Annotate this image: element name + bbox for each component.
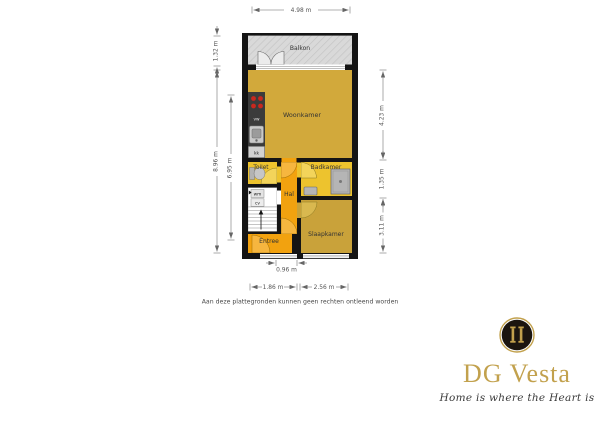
balcony-threshold [248,65,352,71]
dim-right-slaapkamer-label: 3.11 m [380,215,386,236]
shower-icon [331,169,350,194]
fridge-label: kk [254,151,259,157]
floorplan-page: vw kk wm cv [0,0,600,424]
dim-right-woonkamer-label: 4.23 m [380,105,386,126]
kitchen-counter: vw kk [248,92,265,158]
dim-right-badkamer-label: 1.35 m [380,168,386,189]
dim-left-total-label: 8.96 m [214,151,220,172]
label-badkamer: Badkamer [311,164,342,171]
dgvesta-logo: DG Vesta Home is where the Heart is [437,316,597,404]
label-slaapkamer: Slaapkamer [308,231,344,238]
disclaimer-text: Aan deze plattegronden kunnen geen recht… [202,299,399,306]
dim-bottom-door-label: 0.96 m [276,268,297,274]
label-hal: Hal [284,191,294,198]
dim-bottom-left-label: 1.86 m [263,285,284,291]
dgvesta-emblem-icon [498,316,536,354]
dishwasher-label: vw [253,118,260,123]
bathroom-sink-icon [304,187,317,195]
kitchen-sink-icon [250,126,264,143]
label-balkon: Balkon [290,45,310,52]
dim-top-width-label: 4.98 m [291,8,312,14]
logo-tagline: Home is where the Heart is [437,392,597,404]
dim-bottom-right-label: 2.56 m [314,285,335,291]
label-toilet: Toilet [252,165,269,171]
dim-left-inner-label: 6.95 m [228,157,234,178]
boiler-label: cv [255,202,260,207]
label-woonkamer: Woonkamer [283,111,321,119]
staircase [248,207,277,232]
washer-label: wm [254,193,262,198]
dim-bottom-door [266,260,307,266]
bottom-windows [260,254,349,258]
label-entree: Entree [259,238,279,245]
logo-name: DG Vesta [437,360,597,389]
dim-balkon-height-label: 1.32 m [214,40,220,61]
closet-wm-cv: wm cv [248,188,277,208]
